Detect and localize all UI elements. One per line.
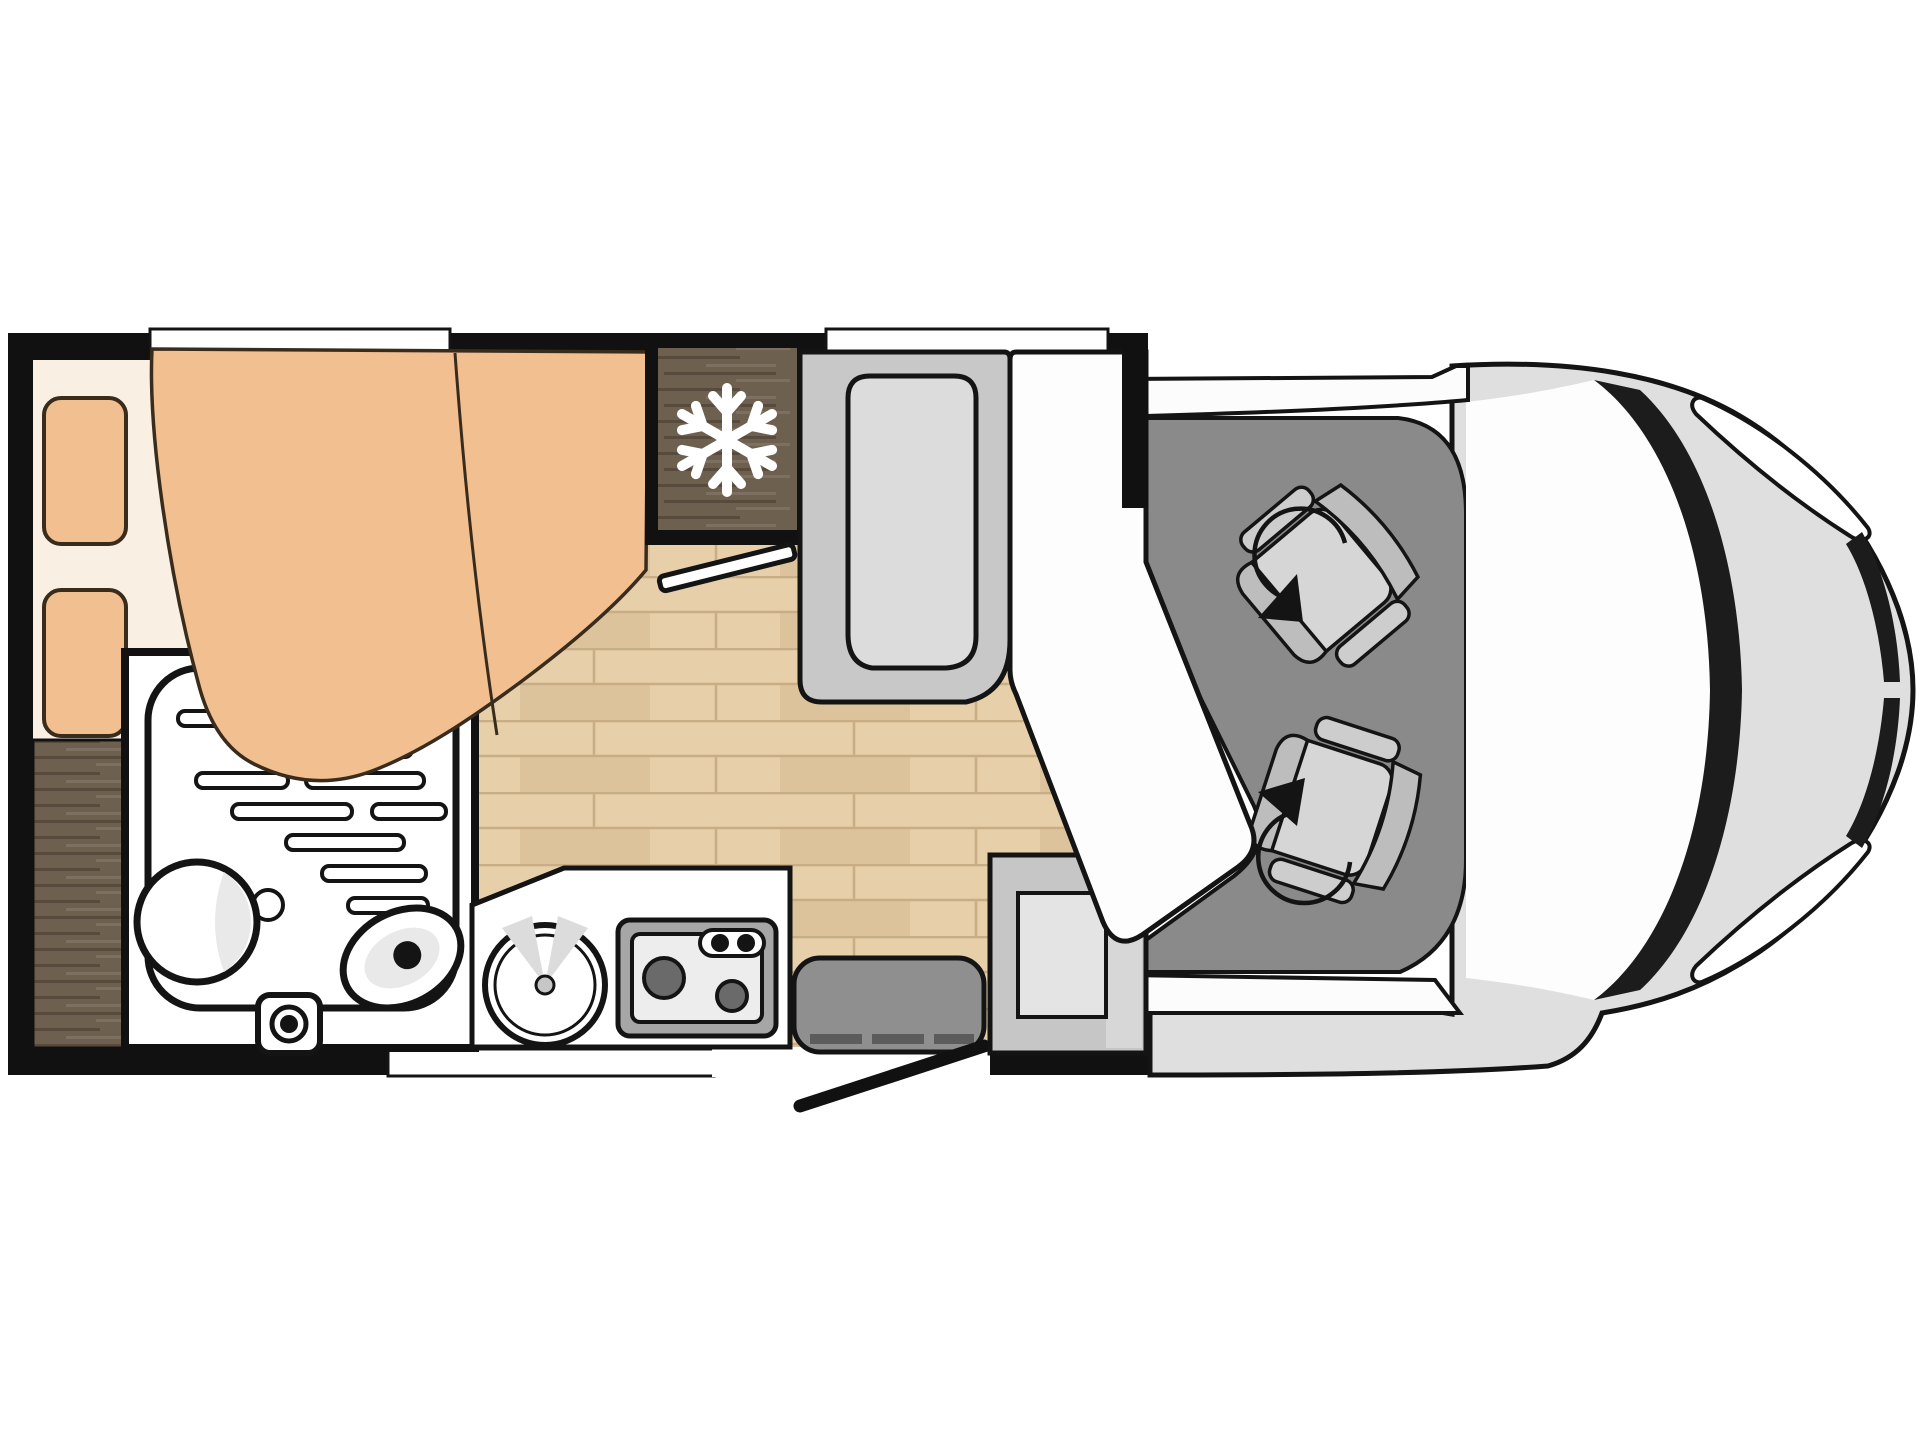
stove <box>618 920 776 1036</box>
wall-left <box>8 333 34 1075</box>
pillow <box>44 590 126 736</box>
wardrobe <box>33 740 125 1048</box>
wall-stub-right <box>1122 333 1148 508</box>
vehicle-front <box>1128 364 1913 1075</box>
habitation-area <box>8 329 1254 1106</box>
window-kitchen <box>388 1049 714 1076</box>
burner <box>717 981 747 1011</box>
pillow <box>44 398 126 544</box>
entry-step <box>794 958 984 1052</box>
burner <box>644 958 684 998</box>
toilet <box>258 995 320 1053</box>
cab-side-top <box>1128 366 1468 416</box>
dinette-bench <box>800 352 1010 702</box>
motorhome-floor-plan <box>0 0 1920 1440</box>
fridge <box>645 333 810 545</box>
washbasin <box>137 862 257 982</box>
cab-side-bottom <box>1128 975 1460 1013</box>
bench-cushion <box>848 376 976 668</box>
kitchen-counter <box>472 868 790 1047</box>
